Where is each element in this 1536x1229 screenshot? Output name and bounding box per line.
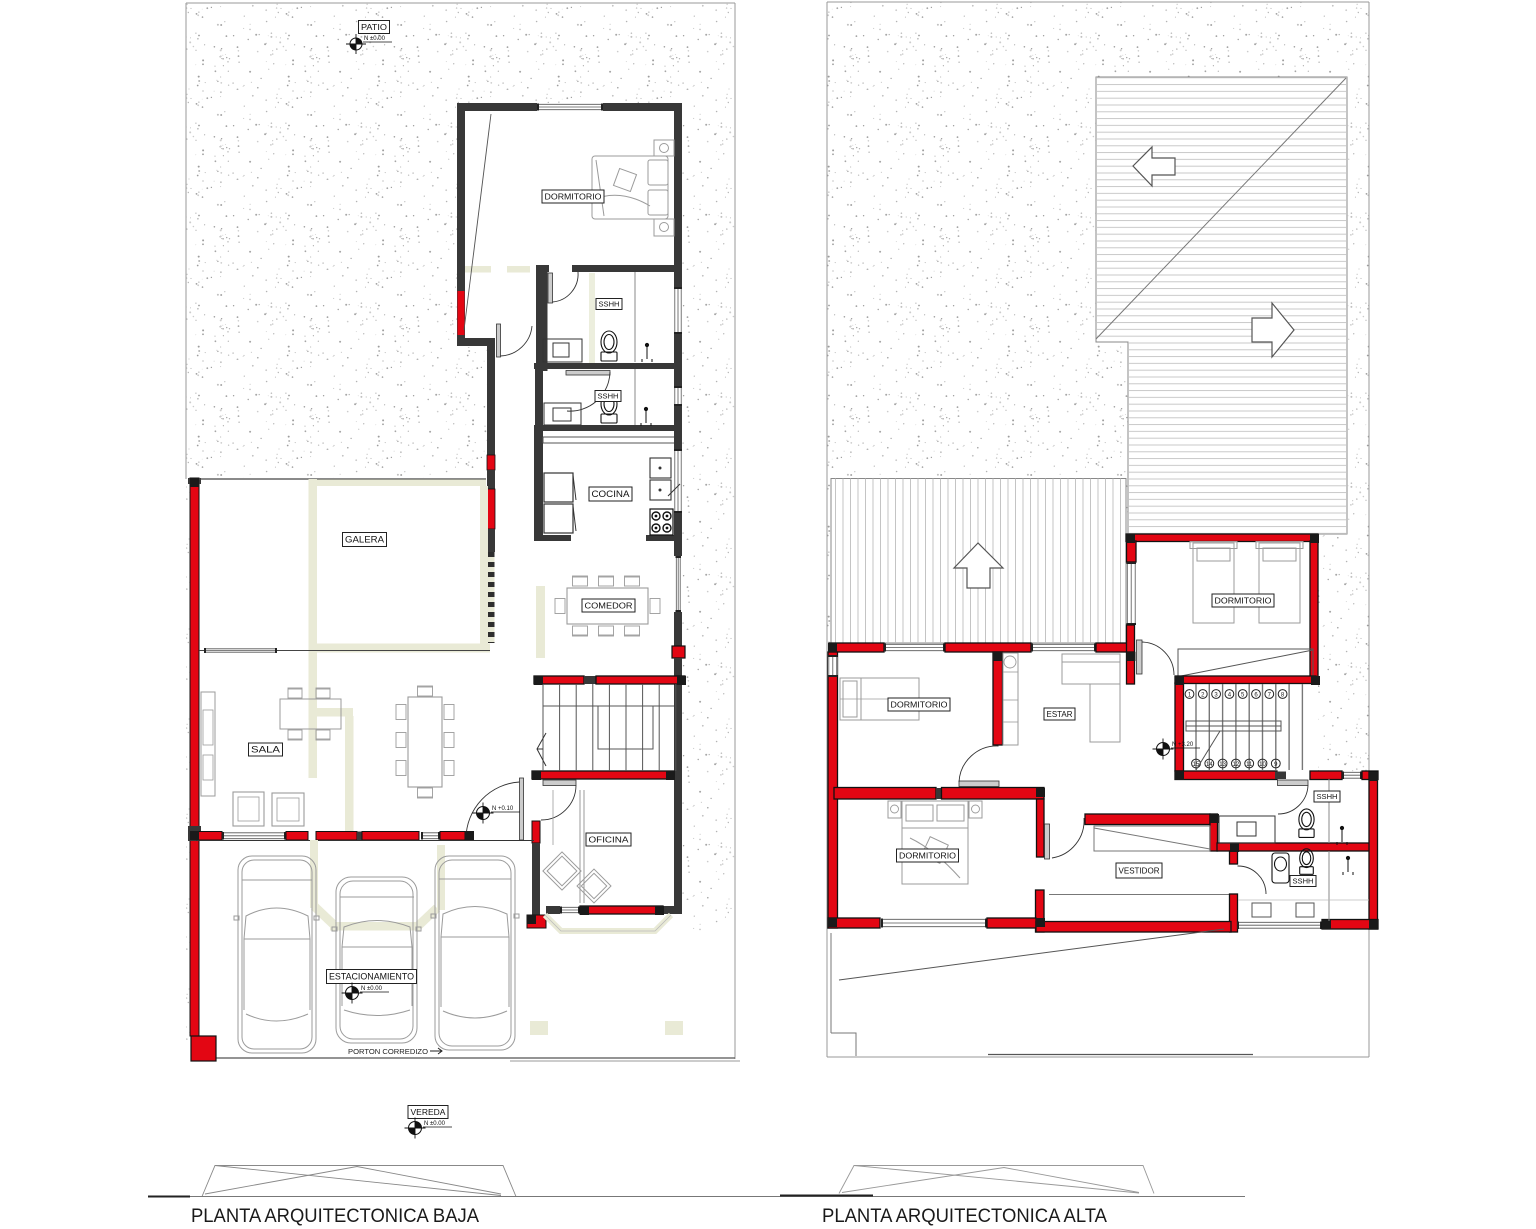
svg-text:DORMITORIO: DORMITORIO — [545, 191, 602, 201]
svg-text:DORMITORIO: DORMITORIO — [1215, 595, 1272, 605]
svg-text:N ±0.00: N ±0.00 — [424, 1121, 446, 1127]
svg-text:COMEDOR: COMEDOR — [585, 600, 633, 610]
svg-text:DORMITORIO: DORMITORIO — [899, 850, 956, 860]
svg-text:N ±0.00: N ±0.00 — [361, 986, 383, 992]
svg-text:N +0.10: N +0.10 — [492, 806, 514, 812]
svg-text:COCINA: COCINA — [592, 489, 630, 499]
svg-text:SSHH: SSHH — [1293, 877, 1314, 886]
svg-text:ESTACIONAMIENTO: ESTACIONAMIENTO — [329, 972, 414, 982]
svg-text:N ±0.00: N ±0.00 — [364, 36, 386, 42]
svg-text:SSHH: SSHH — [1317, 792, 1338, 801]
svg-text:PORTON CORREDIZO: PORTON CORREDIZO — [348, 1047, 428, 1056]
svg-text:GALERA: GALERA — [345, 535, 384, 545]
svg-text:PATIO: PATIO — [361, 22, 387, 32]
svg-text:OFICINA: OFICINA — [589, 834, 629, 844]
svg-text:VEREDA: VEREDA — [411, 1107, 446, 1117]
svg-text:N +3.20: N +3.20 — [1172, 742, 1194, 748]
svg-text:PLANTA ARQUITECTONICA ALTA: PLANTA ARQUITECTONICA ALTA — [822, 1206, 1107, 1227]
svg-text:SSHH: SSHH — [599, 300, 620, 309]
svg-text:10: 10 — [1259, 762, 1266, 768]
svg-text:SSHH: SSHH — [598, 392, 619, 401]
svg-text:SALA: SALA — [251, 745, 280, 755]
svg-text:PLANTA ARQUITECTONICA BAJA: PLANTA ARQUITECTONICA BAJA — [191, 1206, 479, 1227]
svg-text:13: 13 — [1219, 762, 1226, 768]
svg-text:DORMITORIO: DORMITORIO — [891, 699, 948, 709]
svg-text:ESTAR: ESTAR — [1047, 709, 1073, 719]
svg-text:VESTIDOR: VESTIDOR — [1119, 865, 1160, 875]
svg-text:12: 12 — [1233, 762, 1240, 768]
svg-text:14: 14 — [1206, 762, 1213, 768]
svg-text:11: 11 — [1246, 762, 1253, 768]
